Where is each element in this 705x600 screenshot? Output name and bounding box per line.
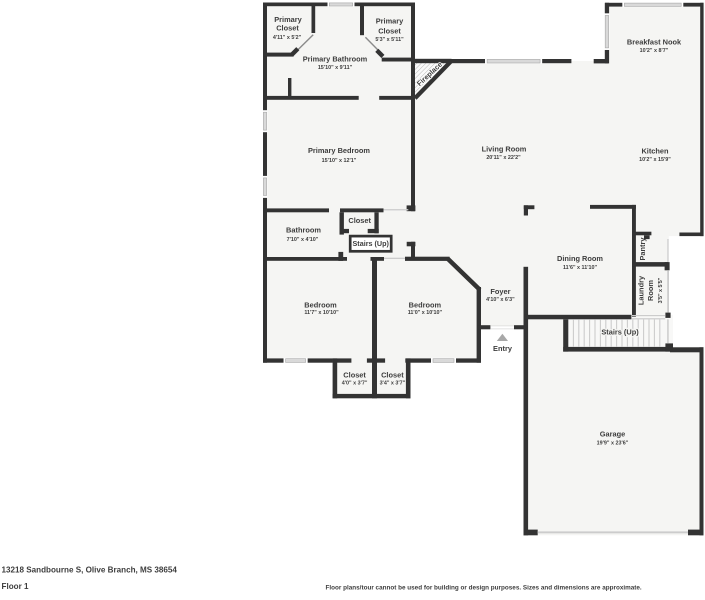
- svg-text:11'7" x 10'10": 11'7" x 10'10": [304, 310, 339, 316]
- svg-text:Living Room: Living Room: [482, 145, 527, 154]
- svg-text:Closet: Closet: [276, 24, 299, 33]
- svg-text:Bathroom: Bathroom: [286, 226, 321, 235]
- svg-text:Foyer: Foyer: [490, 287, 510, 296]
- svg-text:15'10" x 12'1": 15'10" x 12'1": [322, 158, 357, 164]
- svg-text:Pantry: Pantry: [638, 237, 647, 261]
- svg-text:20'11" x 22'2": 20'11" x 22'2": [486, 155, 521, 161]
- svg-text:Closet: Closet: [348, 216, 371, 225]
- svg-text:3'4" x 3'7": 3'4" x 3'7": [380, 380, 406, 386]
- svg-text:Primary Bedroom: Primary Bedroom: [308, 146, 370, 155]
- svg-text:Floor 1: Floor 1: [2, 582, 29, 591]
- svg-text:Bedroom: Bedroom: [409, 300, 442, 309]
- svg-text:15'10" x 9'11": 15'10" x 9'11": [318, 65, 353, 71]
- svg-text:4'10" x 6'3": 4'10" x 6'3": [486, 297, 515, 303]
- svg-text:Stairs (Up): Stairs (Up): [353, 239, 390, 248]
- svg-text:Closet: Closet: [381, 371, 404, 380]
- svg-text:19'9" x 23'6": 19'9" x 23'6": [597, 440, 629, 446]
- svg-text:Closet: Closet: [343, 371, 366, 380]
- svg-text:Primary Bathroom: Primary Bathroom: [303, 55, 368, 64]
- svg-text:11'6" x 11'10": 11'6" x 11'10": [563, 265, 598, 271]
- svg-text:Entry: Entry: [493, 344, 513, 353]
- svg-text:Dining Room: Dining Room: [557, 254, 603, 263]
- svg-text:7'10" x 4'10": 7'10" x 4'10": [287, 237, 319, 243]
- svg-text:Breakfast Nook: Breakfast Nook: [627, 37, 682, 46]
- svg-text:10'2" x 8'7": 10'2" x 8'7": [640, 48, 669, 54]
- svg-text:Floor plans/tour cannot be use: Floor plans/tour cannot be used for buil…: [326, 584, 642, 591]
- svg-text:10'2" x 15'9": 10'2" x 15'9": [639, 157, 671, 163]
- svg-text:Primary: Primary: [376, 17, 404, 26]
- svg-text:13218 Sandbourne S, Olive Bran: 13218 Sandbourne S, Olive Branch, MS 386…: [2, 565, 178, 574]
- svg-text:4'0" x 3'7": 4'0" x 3'7": [342, 380, 368, 386]
- svg-text:Garage: Garage: [600, 430, 625, 439]
- svg-text:Kitchen: Kitchen: [641, 147, 669, 156]
- svg-text:Closet: Closet: [378, 26, 401, 35]
- svg-text:Laundry: Laundry: [637, 275, 646, 305]
- svg-text:11'0" x 10'10": 11'0" x 10'10": [408, 310, 443, 316]
- svg-text:Bedroom: Bedroom: [304, 300, 337, 309]
- svg-text:Stairs (Up): Stairs (Up): [601, 328, 639, 337]
- svg-text:Room: Room: [646, 280, 655, 301]
- svg-text:3'5" x 5'5": 3'5" x 5'5": [658, 277, 664, 303]
- svg-text:4'11" x 5'2": 4'11" x 5'2": [273, 35, 302, 41]
- svg-text:5'3" x 5'11": 5'3" x 5'11": [375, 37, 404, 43]
